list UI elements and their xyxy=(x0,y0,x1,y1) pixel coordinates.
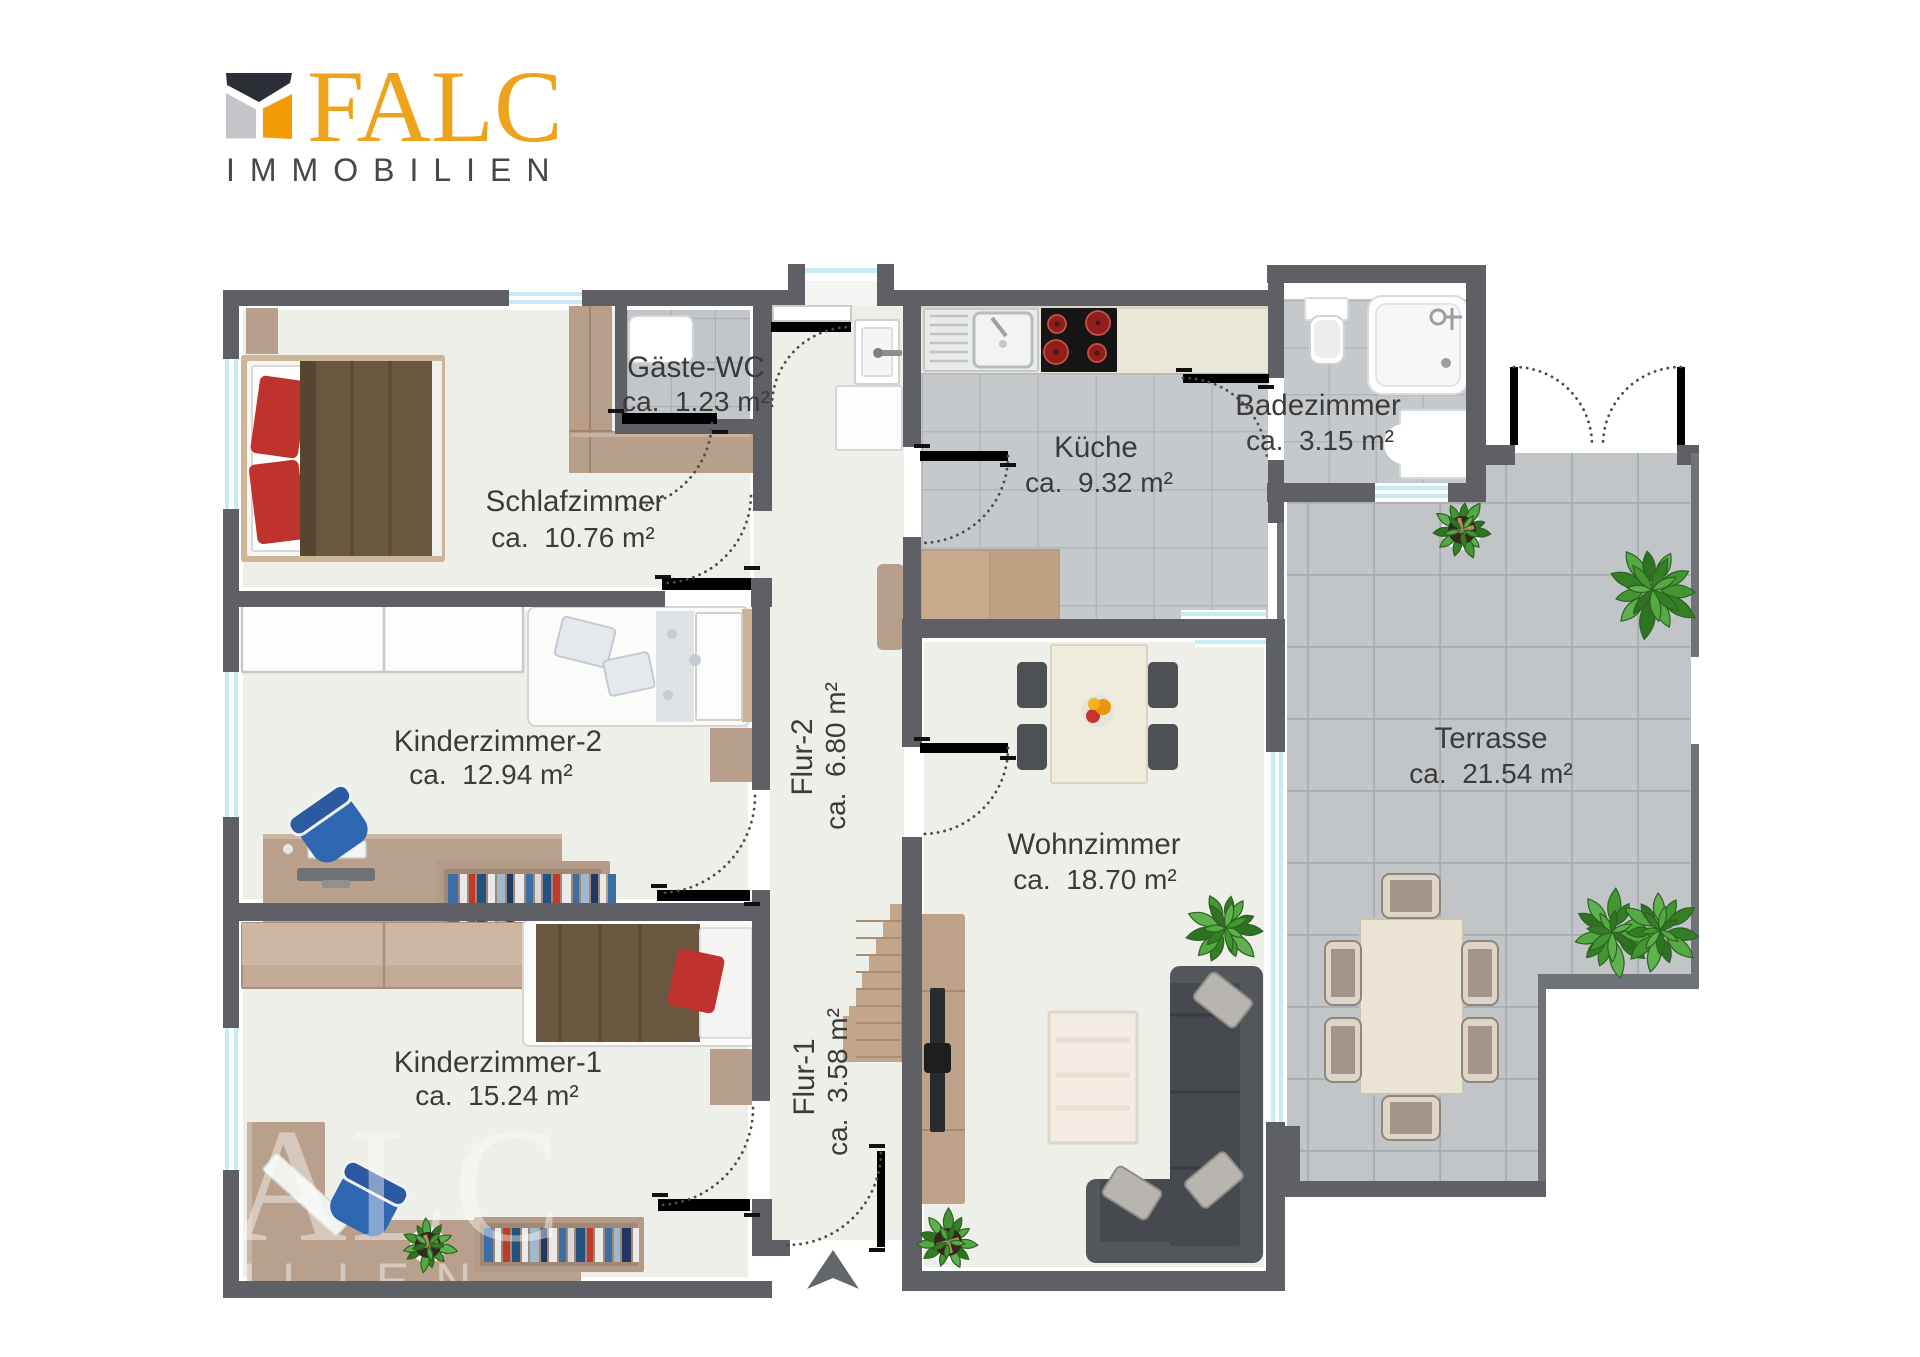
svg-text:Badezimmer: Badezimmer xyxy=(1235,389,1401,422)
svg-text:Wohnzimmer: Wohnzimmer xyxy=(1007,828,1180,861)
svg-text:ca. 10.76 m²: ca. 10.76 m² xyxy=(491,522,654,553)
svg-text:Gäste-WC: Gäste-WC xyxy=(627,351,765,384)
svg-text:FALC: FALC xyxy=(148,1096,565,1276)
svg-text:ca. 18.70 m²: ca. 18.70 m² xyxy=(1013,864,1176,895)
svg-text:Kinderzimmer-2: Kinderzimmer-2 xyxy=(394,725,602,758)
svg-text:IMMOBILIEN: IMMOBILIEN xyxy=(226,152,564,188)
svg-text:Terrasse: Terrasse xyxy=(1434,722,1547,755)
svg-text:Flur-2: Flur-2 xyxy=(786,718,819,795)
svg-text:ca. 12.94 m²: ca. 12.94 m² xyxy=(409,759,572,790)
svg-text:Kinderzimmer-1: Kinderzimmer-1 xyxy=(394,1046,602,1079)
svg-text:ca. 6.80 m²: ca. 6.80 m² xyxy=(820,682,851,830)
svg-text:ca. 15.24 m²: ca. 15.24 m² xyxy=(415,1080,578,1111)
svg-text:Küche: Küche xyxy=(1054,431,1138,464)
svg-text:ca. 3.58 m²: ca. 3.58 m² xyxy=(822,1008,853,1156)
svg-text:ca. 1.23 m²: ca. 1.23 m² xyxy=(622,386,770,417)
svg-text:Schlafzimmer: Schlafzimmer xyxy=(486,485,665,518)
svg-text:ca. 9.32 m²: ca. 9.32 m² xyxy=(1025,467,1173,498)
svg-text:ca. 21.54 m²: ca. 21.54 m² xyxy=(1409,758,1572,789)
svg-text:ca. 3.15 m²: ca. 3.15 m² xyxy=(1246,425,1394,456)
svg-text:FALC: FALC xyxy=(307,50,563,164)
svg-text:Flur-1: Flur-1 xyxy=(788,1038,821,1115)
